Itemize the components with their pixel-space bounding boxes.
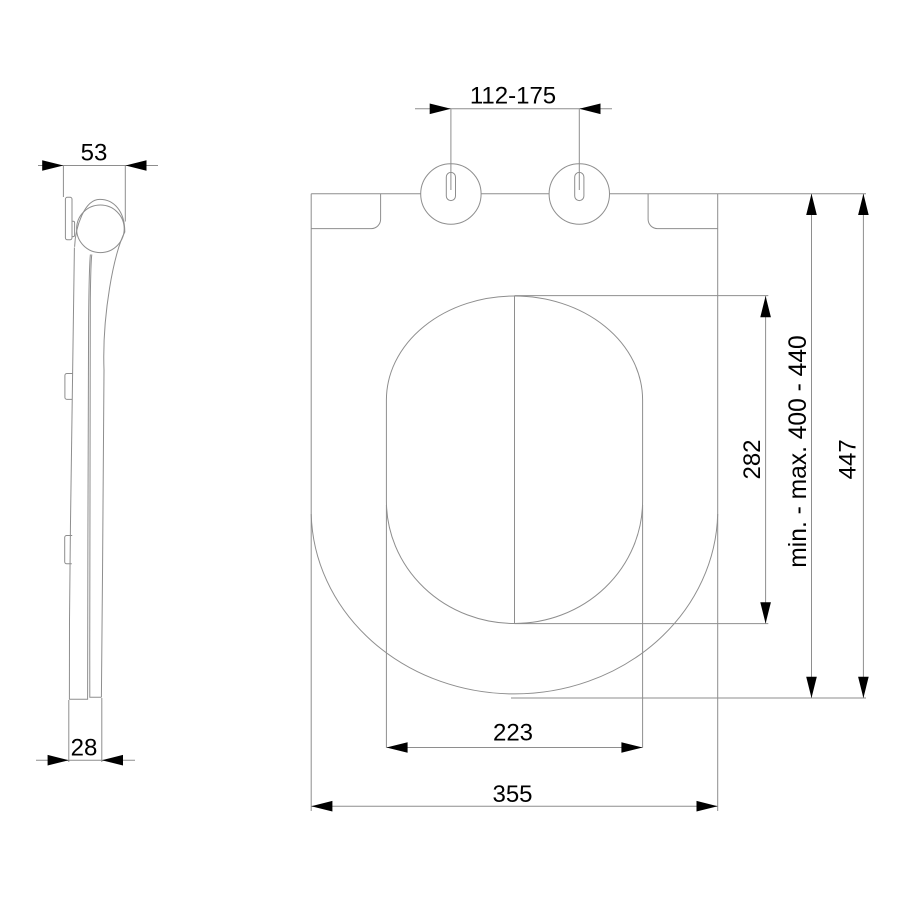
svg-text:355: 355 [492,781,532,808]
svg-text:28: 28 [71,734,98,761]
svg-text:282: 282 [739,439,766,479]
svg-text:447: 447 [834,439,861,479]
svg-text:53: 53 [81,139,108,166]
svg-text:223: 223 [493,720,533,747]
svg-text:112-175: 112-175 [470,83,556,110]
svg-text:min. - max. 400 - 440: min. - max. 400 - 440 [785,335,812,567]
